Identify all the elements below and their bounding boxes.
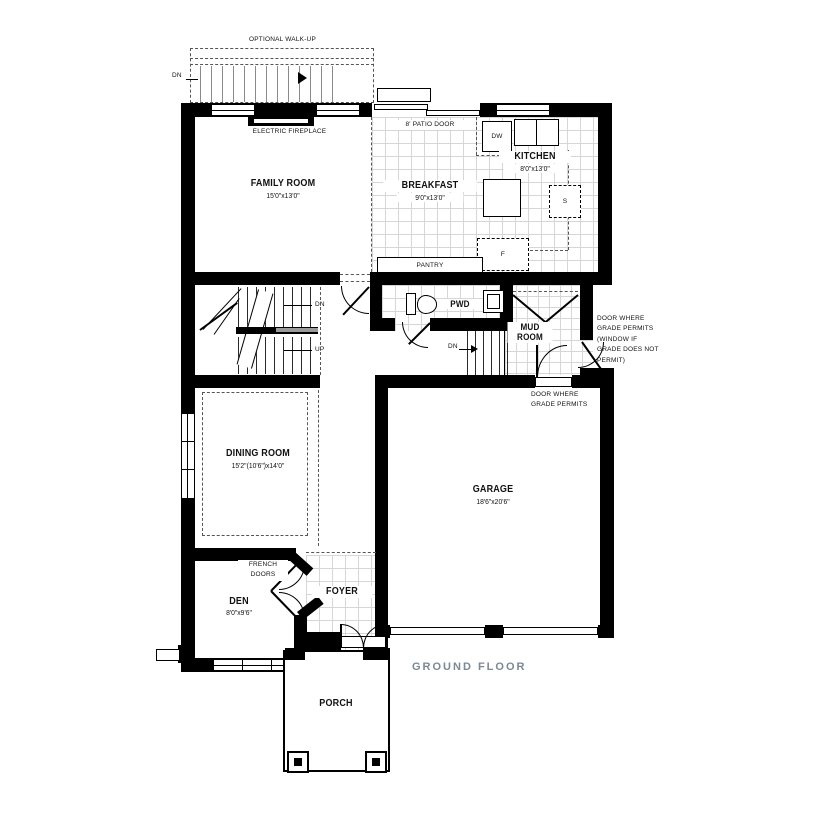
porch-column <box>365 751 387 773</box>
garage-wall-right <box>600 375 614 637</box>
den-label: DEN <box>208 596 271 608</box>
mudroom-label: MUD ROOM <box>508 322 553 343</box>
family-room-dims: 15'0"x13'0" <box>229 191 337 200</box>
dining-window <box>181 413 195 499</box>
counter-edge-line <box>530 250 568 251</box>
mudroom-edge-line <box>504 331 505 375</box>
fireplace-label: ELECTRIC FIREPLACE <box>237 127 342 137</box>
kitchen-island <box>483 179 521 217</box>
wall-right-upper <box>598 103 612 285</box>
walkup-stair-treads <box>200 66 336 102</box>
breakfast-dims: 9'0"x13'0" <box>397 193 464 202</box>
porch-label: PORCH <box>306 698 365 710</box>
porch-wall-right <box>363 648 390 660</box>
window-mullion <box>317 110 359 111</box>
den-dims: 8'0"x9'6" <box>208 608 271 617</box>
garage-door-right <box>503 627 598 635</box>
basement-dn-arrow-icon <box>471 345 478 353</box>
window-divider <box>182 441 194 442</box>
pantry-label: PANTRY <box>377 261 483 271</box>
dishwasher: DW <box>482 121 512 152</box>
pwd-sink-basin <box>487 294 500 309</box>
family-breakfast-divider-line <box>371 117 372 272</box>
porch-column-core <box>294 758 302 766</box>
grade-door-note: DOOR WHERE GRADE PERMITS <box>531 390 601 411</box>
pwd-label: PWD <box>440 299 480 309</box>
stair-open-rail-line <box>320 287 321 375</box>
walkup-label: OPTIONAL WALK-UP <box>195 35 370 45</box>
fireplace-firebox <box>254 119 308 123</box>
patio-door-panel-left <box>374 104 428 110</box>
toilet-tank <box>406 293 416 315</box>
fridge-label: F <box>478 250 528 260</box>
pwd-door-swing-arc <box>402 322 428 348</box>
mudroom-closet-shelf-line <box>513 291 578 292</box>
cased-opening-line <box>340 274 370 275</box>
fridge: F <box>477 238 529 271</box>
mudroom-garage-door-frame <box>535 377 572 387</box>
window-divider <box>271 660 272 670</box>
sink-divider <box>536 120 537 145</box>
garage-door-left <box>390 627 485 635</box>
wall-mid-left <box>194 272 340 285</box>
walkup-direction-arrow-icon <box>298 72 307 84</box>
window-divider <box>182 469 194 470</box>
foyer-hall-open-line <box>306 552 376 553</box>
cased-opening-line <box>340 281 370 282</box>
basement-stair-treads <box>467 331 513 375</box>
foyer-label: FOYER <box>311 586 372 598</box>
mudroom-wall-right <box>580 285 593 340</box>
window-mullion <box>187 414 188 498</box>
dining-hall-open-line <box>318 390 319 546</box>
floor-plan: OPTIONAL WALK-UP DN ELECTRIC FIREPLACE 8… <box>0 0 815 832</box>
stove-label: S <box>550 197 580 207</box>
side-stoop-steps <box>156 649 180 661</box>
french-doors-label: FRENCH DOORS <box>238 560 288 581</box>
stair-up-leader-line <box>284 350 312 351</box>
ground-floor-title: GROUND FLOOR <box>412 661 526 673</box>
dining-room-dims: 15'2"(10'6")x14'0" <box>204 461 312 470</box>
window-divider <box>242 660 243 670</box>
wall-mid2-left <box>181 375 320 388</box>
stove: S <box>549 185 581 218</box>
garage-wall-top-left <box>375 375 535 388</box>
side-stoop-wall <box>178 645 194 663</box>
kitchen-label: KITCHEN <box>499 151 571 163</box>
patio-door-label: 8' PATIO DOOR <box>389 120 471 130</box>
wall-mid-right <box>370 272 612 285</box>
basement-dn-arrow-line <box>459 349 471 350</box>
porch-column-core <box>372 758 380 766</box>
stair-dn-leader-line <box>284 305 312 306</box>
pwd-wall-bottom-stub <box>382 318 395 331</box>
window-mullion <box>497 110 549 111</box>
breakfast-label: BREAKFAST <box>383 180 477 192</box>
patio-door-panel-right <box>426 110 480 116</box>
window-mullion <box>212 110 254 111</box>
porch-column <box>287 751 309 773</box>
patio-landing <box>377 88 431 102</box>
family-room-label: FAMILY ROOM <box>229 178 337 190</box>
walkup-dn-leader-line <box>186 79 198 80</box>
garage-wall-left <box>375 388 388 650</box>
mudroom-garage-door-leaf <box>536 345 538 377</box>
garage-dims: 18'6"x20'6" <box>448 497 538 506</box>
kitchen-dims: 8'0"x13'0" <box>504 164 567 173</box>
pwd-wall-bottom <box>430 318 513 331</box>
garage-pillar-center <box>485 625 503 638</box>
grade-door-window-note: DOOR WHERE GRADE PERMITS (WINDOW IF GRAD… <box>597 314 675 366</box>
dishwasher-label: DW <box>483 132 511 142</box>
stair-handrail <box>276 328 318 332</box>
walkup-landing-line2 <box>190 64 374 65</box>
walkup-landing-line1 <box>190 58 374 59</box>
garage-label: GARAGE <box>448 484 538 496</box>
walkup-dn-label: DN <box>172 71 182 81</box>
dining-room-label: DINING ROOM <box>204 448 312 460</box>
basement-dn-label: DN <box>446 342 460 352</box>
pwd-wall-left <box>370 285 382 331</box>
counter-edge-line <box>476 117 477 155</box>
porch-wall-left <box>285 648 305 660</box>
garage-pillar-right <box>598 625 614 638</box>
